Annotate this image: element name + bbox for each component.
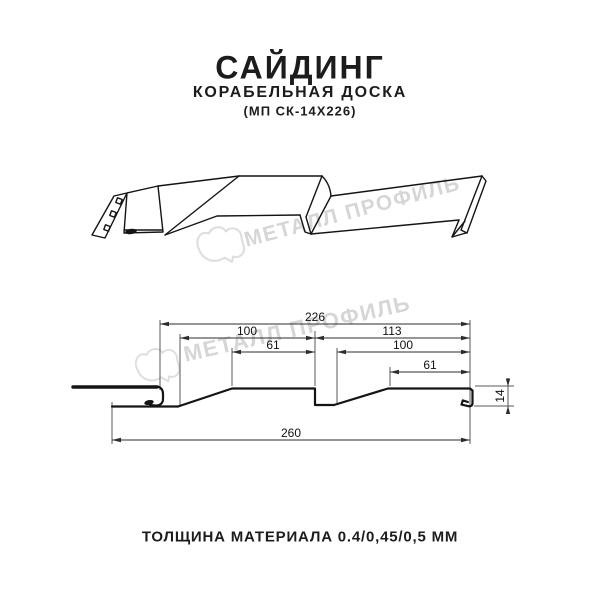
dim-label-right-flat: 61: [423, 358, 436, 372]
extension-lines: [112, 320, 514, 444]
thickness-note: ТОЛЩИНА МАТЕРИАЛА 0.4/0,45/0,5 ММ: [142, 529, 458, 546]
model-code: (МП СК-14Х226): [244, 104, 357, 119]
dim-label-right-board-width: 100: [393, 338, 413, 352]
perspective-drawing: [92, 176, 486, 238]
page-title: САЙДИНГ: [215, 50, 384, 87]
watermark-logo-icon: [136, 227, 244, 381]
dim-label-left-flat: 61: [266, 338, 279, 352]
dim-label-profile-height: 14: [493, 389, 507, 402]
page-subtitle: КОРАБЕЛЬНАЯ ДОСКА: [193, 84, 407, 102]
product-diagram-page: САЙДИНГ КОРАБЕЛЬНАЯ ДОСКА (МП СК-14Х226)…: [0, 0, 600, 600]
profile-outline: [73, 387, 473, 407]
dimension-arrows: [112, 322, 510, 442]
perforation-holes: [104, 198, 122, 231]
dim-label-left-board-width: 100: [237, 324, 257, 338]
dim-label-module-width: 226: [305, 310, 325, 324]
dimension-lines: [112, 324, 470, 440]
fold-lock: [124, 186, 163, 233]
dim-label-right-pitch: 113: [382, 324, 401, 338]
dim-label-total-width: 260: [281, 426, 301, 440]
